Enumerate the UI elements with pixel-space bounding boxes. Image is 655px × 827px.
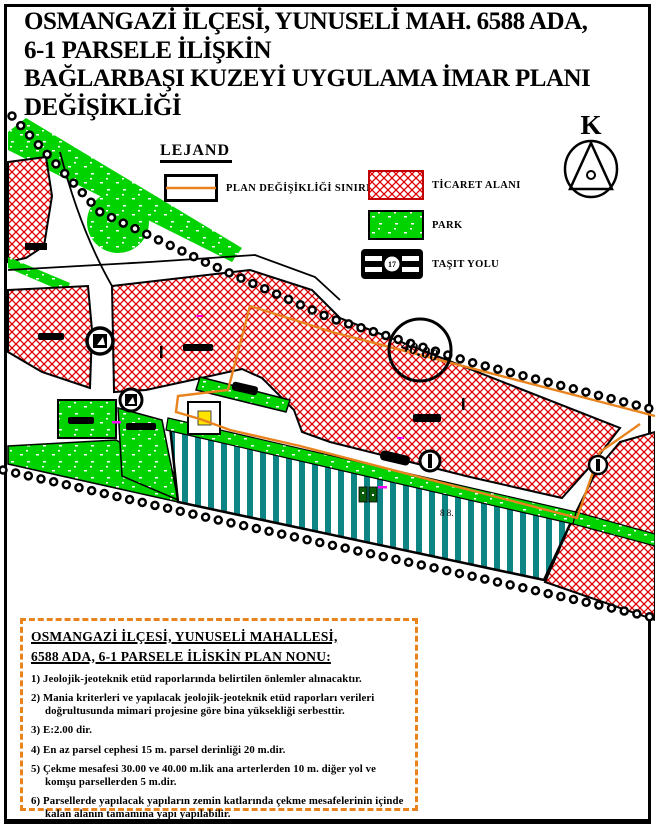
- commercial-swatch-icon: [368, 170, 424, 200]
- plan-title-line3: BAĞLARBAŞI KUZEYİ UYGULAMA İMAR PLANI: [24, 65, 649, 94]
- plan-sheet: { "title": { "line1": "OSMANGAZİ İLÇESİ,…: [0, 0, 655, 827]
- parcel-number-label: 8 8.: [440, 508, 454, 518]
- park-swatch-icon: [368, 210, 424, 240]
- plan-notes-heading-line2: 6588 ADA, 6-1 PARSELE İLİSKİN PLAN NONU:: [31, 649, 331, 664]
- plan-note-3: 3) E:2.00 dir.: [31, 724, 407, 737]
- plan-notes-heading: OSMANGAZİ İLÇESİ, YUNUSELİ MAHALLESİ, 65…: [31, 627, 407, 666]
- road-swatch-number: 17: [388, 260, 396, 269]
- plan-notes-box: OSMANGAZİ İLÇESİ, YUNUSELİ MAHALLESİ, 65…: [20, 618, 418, 811]
- legend-item-road: 17 TAŞIT YOLU: [360, 248, 499, 280]
- park-roundabout-island: [87, 191, 149, 253]
- plan-notes-heading-line1: OSMANGAZİ İLÇESİ, YUNUSELİ MAHALLESİ,: [31, 629, 338, 644]
- plan-title: OSMANGAZİ İLÇESİ, YUNUSELİ MAH. 6588 ADA…: [24, 8, 649, 122]
- commercial-area-northwest: [8, 157, 52, 262]
- north-label: K: [556, 112, 626, 139]
- plan-note-6: 6) Parsellerde yapılacak yapıların zemin…: [31, 795, 407, 820]
- legend-title: LEJAND: [160, 142, 232, 163]
- plan-note-1: 1) Jeolojik-jeoteknik etüd raporlarında …: [31, 673, 407, 686]
- plan-note-5: 5) Çekme mesafesi 30.00 ve 40.00 m.lik a…: [31, 763, 407, 788]
- plan-title-line2: 6-1 PARSELE İLİŞKİN: [24, 37, 649, 66]
- legend-item-commercial: TİCARET ALANI: [368, 170, 521, 200]
- legend-label-road: TAŞIT YOLU: [432, 259, 499, 270]
- legend-label-plan-boundary: PLAN DEĞİŞİKLİĞİ SINIRI: [226, 183, 371, 194]
- plan-note-2: 2) Mania kriterleri ve yapılacak jeoloji…: [31, 692, 407, 717]
- plan-boundary-swatch-icon: [164, 174, 218, 202]
- north-arrow: K: [556, 112, 626, 204]
- road-swatch-icon: 17: [360, 248, 424, 280]
- legend-item-park: PARK: [368, 210, 463, 240]
- legend-item-plan-boundary: PLAN DEĞİŞİKLİĞİ SINIRI: [164, 174, 371, 202]
- legend: LEJAND PLAN DEĞİŞİKLİĞİ SINIRI TİCARET A…: [160, 142, 520, 163]
- north-arrow-icon: [560, 139, 622, 199]
- legend-label-commercial: TİCARET ALANI: [432, 180, 521, 191]
- plan-note-4: 4) En az parsel cephesi 15 m. parsel der…: [31, 744, 407, 757]
- legend-label-park: PARK: [432, 220, 463, 231]
- plan-title-line1: OSMANGAZİ İLÇESİ, YUNUSELİ MAH. 6588 ADA…: [24, 8, 649, 37]
